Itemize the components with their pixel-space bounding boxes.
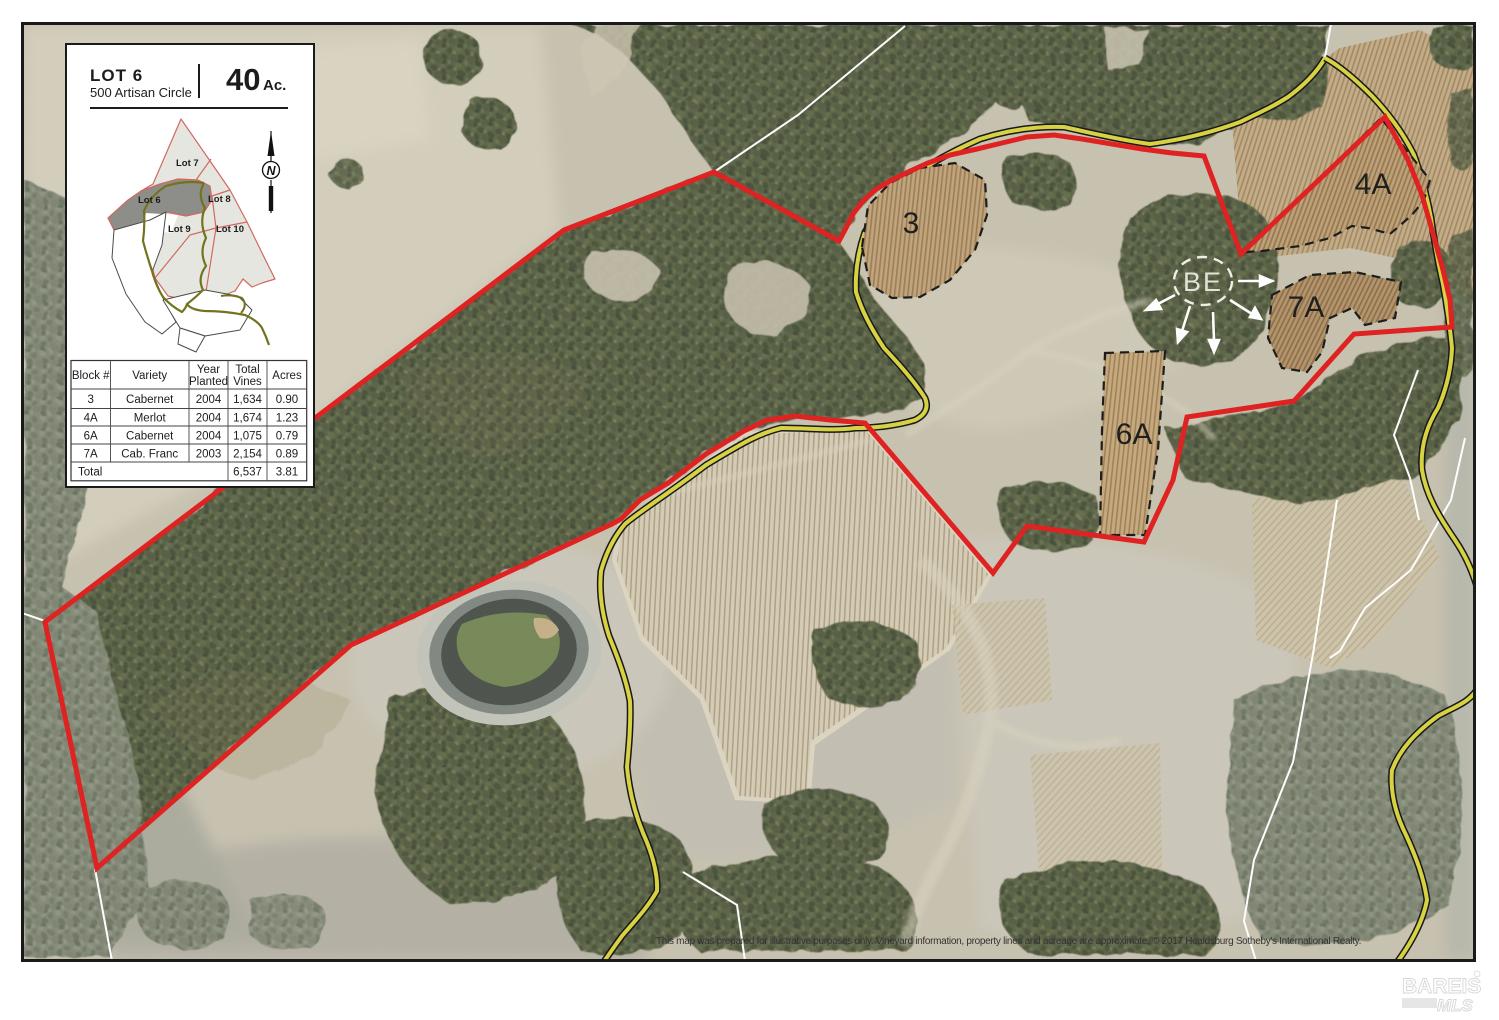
svg-text:Lot 9: Lot 9 (168, 224, 191, 235)
svg-text:Lot 6: Lot 6 (138, 195, 161, 206)
svg-text:Lot 10: Lot 10 (216, 224, 244, 235)
svg-text:3: 3 (87, 394, 93, 406)
svg-text:Ac.: Ac. (263, 77, 286, 94)
svg-text:0.90: 0.90 (276, 394, 298, 406)
svg-text:0.79: 0.79 (276, 431, 298, 443)
svg-text:0.89: 0.89 (276, 449, 298, 461)
svg-text:Variety: Variety (132, 370, 167, 382)
svg-text:1.23: 1.23 (276, 413, 298, 425)
svg-text:Merlot: Merlot (134, 413, 167, 425)
svg-text:1,674: 1,674 (233, 413, 262, 425)
svg-text:Cabernet: Cabernet (126, 394, 174, 406)
svg-text:500 Artisan Circle: 500 Artisan Circle (90, 85, 192, 100)
svg-text:BAREIS: BAREIS (1402, 975, 1481, 998)
svg-text:2,154: 2,154 (233, 449, 262, 461)
svg-text:Planted: Planted (189, 376, 228, 388)
svg-text:6,537: 6,537 (233, 467, 262, 479)
svg-text:6A: 6A (84, 431, 98, 443)
svg-text:1,634: 1,634 (233, 394, 262, 406)
svg-text:Cab. Franc: Cab. Franc (121, 449, 178, 461)
svg-text:4A: 4A (84, 413, 98, 425)
svg-text:Cabernet: Cabernet (126, 431, 174, 443)
svg-text:This map was prepared for illu: This map was prepared for illustrative p… (656, 936, 1361, 947)
svg-text:Vines: Vines (233, 376, 262, 388)
svg-text:LOT 6: LOT 6 (90, 66, 143, 85)
svg-text:N: N (266, 164, 276, 178)
svg-text:MLS: MLS (1437, 996, 1474, 1015)
svg-text:Year: Year (197, 364, 220, 376)
svg-text:Total: Total (235, 364, 259, 376)
svg-text:Lot 8: Lot 8 (208, 194, 231, 205)
svg-text:2004: 2004 (196, 413, 222, 425)
svg-text:3.81: 3.81 (276, 467, 298, 479)
svg-text:Acres: Acres (272, 370, 302, 382)
svg-text:1,075: 1,075 (233, 431, 262, 443)
svg-text:Total: Total (78, 467, 102, 479)
svg-text:40: 40 (226, 62, 260, 97)
svg-text:2004: 2004 (196, 431, 222, 443)
svg-text:2003: 2003 (196, 449, 222, 461)
svg-text:Lot 7: Lot 7 (176, 158, 199, 169)
svg-text:7A: 7A (84, 449, 98, 461)
svg-text:2004: 2004 (196, 394, 222, 406)
svg-text:Block #: Block # (72, 370, 110, 382)
